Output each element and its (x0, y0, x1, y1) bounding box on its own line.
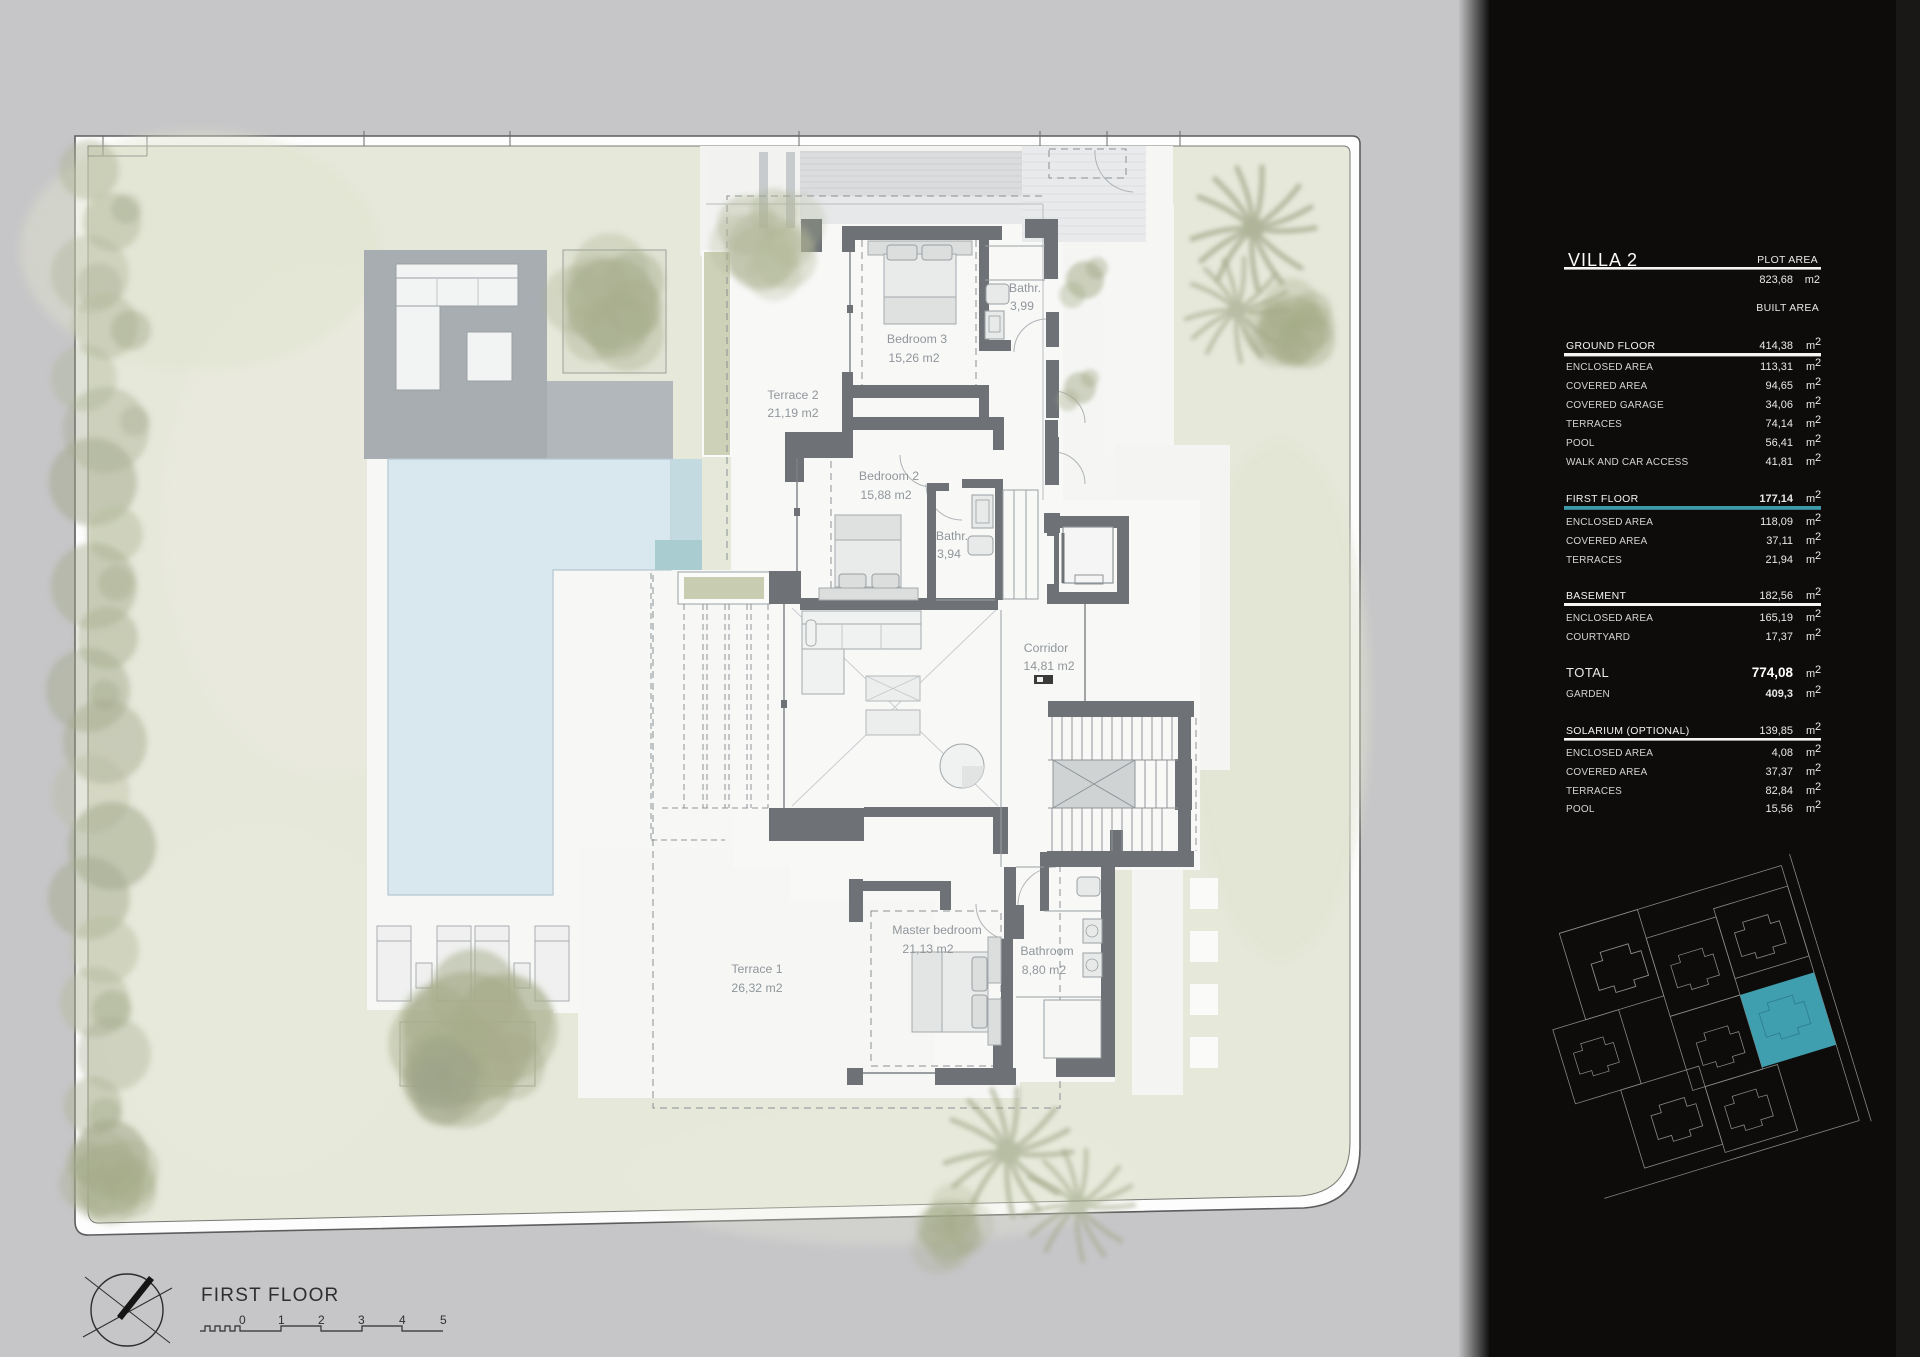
svg-text:2: 2 (1815, 743, 1821, 755)
svg-text:3: 3 (358, 1313, 365, 1327)
svg-text:m: m (1806, 631, 1815, 643)
svg-text:Terrace 1: Terrace 1 (731, 962, 782, 976)
svg-text:182,56: 182,56 (1759, 590, 1793, 602)
svg-text:41,81: 41,81 (1765, 456, 1793, 468)
svg-text:m: m (1806, 380, 1815, 392)
svg-text:3,94: 3,94 (937, 547, 961, 561)
svg-text:2: 2 (1815, 395, 1821, 407)
svg-text:2: 2 (1815, 627, 1821, 639)
svg-text:m: m (1806, 516, 1815, 528)
svg-text:5: 5 (440, 1313, 447, 1327)
svg-text:823,68: 823,68 (1759, 274, 1793, 286)
svg-text:2: 2 (1815, 376, 1821, 388)
svg-text:Bathr.: Bathr. (1009, 281, 1041, 295)
svg-text:2: 2 (1815, 684, 1821, 696)
svg-text:2: 2 (1815, 357, 1821, 369)
svg-text:15,56: 15,56 (1765, 803, 1793, 815)
svg-text:118,09: 118,09 (1760, 516, 1793, 528)
svg-text:2: 2 (1815, 414, 1821, 426)
svg-text:m: m (1806, 590, 1815, 602)
svg-text:m: m (1806, 612, 1815, 624)
svg-text:21,94: 21,94 (1765, 554, 1793, 566)
svg-text:COVERED GARAGE: COVERED GARAGE (1566, 400, 1664, 411)
svg-text:94,65: 94,65 (1765, 380, 1793, 392)
svg-text:POOL: POOL (1566, 804, 1595, 815)
svg-text:2: 2 (1815, 531, 1821, 543)
svg-text:139,85: 139,85 (1759, 725, 1793, 737)
svg-text:m: m (1806, 747, 1815, 759)
svg-text:m: m (1806, 725, 1815, 737)
svg-text:m2: m2 (1805, 274, 1820, 286)
svg-text:WALK AND CAR ACCESS: WALK AND CAR ACCESS (1566, 457, 1688, 468)
svg-text:ENCLOSED AREA: ENCLOSED AREA (1566, 517, 1653, 528)
svg-text:COVERED AREA: COVERED AREA (1566, 381, 1647, 392)
svg-text:165,19: 165,19 (1759, 612, 1793, 624)
svg-text:37,11: 37,11 (1766, 535, 1793, 547)
svg-text:m: m (1806, 361, 1815, 373)
svg-text:m: m (1806, 437, 1815, 449)
svg-text:POOL: POOL (1566, 438, 1595, 449)
svg-text:COVERED AREA: COVERED AREA (1566, 536, 1647, 547)
svg-text:m: m (1806, 418, 1815, 430)
svg-text:21,13 m2: 21,13 m2 (902, 942, 953, 956)
svg-text:Terrace 2: Terrace 2 (767, 388, 818, 402)
svg-text:2: 2 (1815, 336, 1821, 348)
svg-text:113,31: 113,31 (1760, 361, 1793, 373)
svg-text:34,06: 34,06 (1765, 399, 1793, 411)
svg-text:ENCLOSED AREA: ENCLOSED AREA (1566, 362, 1653, 373)
svg-text:m: m (1806, 668, 1815, 680)
svg-text:4,08: 4,08 (1772, 747, 1793, 759)
svg-text:26,32 m2: 26,32 m2 (731, 981, 782, 995)
svg-text:m: m (1806, 688, 1815, 700)
svg-text:GROUND FLOOR: GROUND FLOOR (1566, 340, 1655, 352)
svg-text:414,38: 414,38 (1759, 340, 1793, 352)
svg-text:2: 2 (1815, 608, 1821, 620)
svg-text:COVERED AREA: COVERED AREA (1566, 767, 1647, 778)
svg-text:ENCLOSED AREA: ENCLOSED AREA (1566, 613, 1653, 624)
svg-text:21,19 m2: 21,19 m2 (767, 406, 818, 420)
svg-text:m: m (1806, 535, 1815, 547)
svg-text:FIRST FLOOR: FIRST FLOOR (201, 1285, 339, 1306)
svg-text:TERRACES: TERRACES (1566, 786, 1622, 797)
svg-text:m: m (1806, 493, 1815, 505)
svg-text:2: 2 (1815, 550, 1821, 562)
svg-text:37,37: 37,37 (1765, 766, 1793, 778)
svg-text:2: 2 (1815, 586, 1821, 598)
svg-text:56,41: 56,41 (1765, 437, 1793, 449)
svg-text:TERRACES: TERRACES (1566, 555, 1622, 566)
svg-text:m: m (1806, 456, 1815, 468)
svg-text:2: 2 (318, 1313, 325, 1327)
svg-text:Corridor: Corridor (1024, 641, 1068, 655)
svg-text:2: 2 (1815, 452, 1821, 464)
svg-text:409,3: 409,3 (1765, 688, 1793, 700)
svg-text:2: 2 (1815, 762, 1821, 774)
svg-text:m: m (1806, 399, 1815, 411)
svg-text:m: m (1806, 554, 1815, 566)
svg-text:COURTYARD: COURTYARD (1566, 632, 1630, 643)
svg-text:ENCLOSED AREA: ENCLOSED AREA (1566, 748, 1653, 759)
svg-text:82,84: 82,84 (1765, 785, 1793, 797)
svg-text:TERRACES: TERRACES (1566, 419, 1622, 430)
svg-text:2: 2 (1815, 721, 1821, 733)
svg-text:15,88 m2: 15,88 m2 (860, 488, 911, 502)
svg-text:m: m (1806, 785, 1815, 797)
svg-text:m: m (1806, 340, 1815, 352)
svg-text:Bedroom 3: Bedroom 3 (887, 332, 947, 346)
svg-text:17,37: 17,37 (1765, 631, 1793, 643)
svg-text:TOTAL: TOTAL (1566, 665, 1609, 680)
svg-text:14,81 m2: 14,81 m2 (1023, 659, 1074, 673)
svg-text:15,26 m2: 15,26 m2 (888, 351, 939, 365)
svg-text:2: 2 (1815, 512, 1821, 524)
svg-text:PLOT AREA: PLOT AREA (1757, 254, 1818, 266)
svg-text:FIRST FLOOR: FIRST FLOOR (1566, 493, 1639, 505)
svg-text:2: 2 (1815, 489, 1821, 501)
svg-text:m: m (1806, 766, 1815, 778)
svg-text:BASEMENT: BASEMENT (1566, 590, 1626, 602)
svg-text:SOLARIUM (OPTIONAL): SOLARIUM (OPTIONAL) (1566, 725, 1690, 737)
svg-text:0: 0 (239, 1313, 246, 1327)
svg-text:2: 2 (1815, 664, 1821, 676)
svg-text:Bedroom 2: Bedroom 2 (859, 469, 919, 483)
svg-text:2: 2 (1815, 781, 1821, 793)
svg-text:74,14: 74,14 (1765, 418, 1793, 430)
svg-text:8,80 m2: 8,80 m2 (1022, 963, 1067, 977)
svg-text:3,99: 3,99 (1010, 299, 1034, 313)
svg-text:1: 1 (278, 1313, 285, 1327)
svg-text:2: 2 (1815, 799, 1821, 811)
svg-text:2: 2 (1815, 433, 1821, 445)
svg-text:Bathr.: Bathr. (936, 529, 968, 543)
svg-text:177,14: 177,14 (1759, 493, 1794, 505)
svg-text:4: 4 (399, 1313, 406, 1327)
svg-text:Bathroom: Bathroom (1020, 944, 1073, 958)
svg-text:Master bedroom: Master bedroom (892, 923, 982, 937)
svg-text:m: m (1806, 803, 1815, 815)
svg-text:GARDEN: GARDEN (1566, 689, 1610, 700)
svg-text:774,08: 774,08 (1752, 665, 1794, 680)
svg-text:BUILT AREA: BUILT AREA (1756, 302, 1819, 314)
